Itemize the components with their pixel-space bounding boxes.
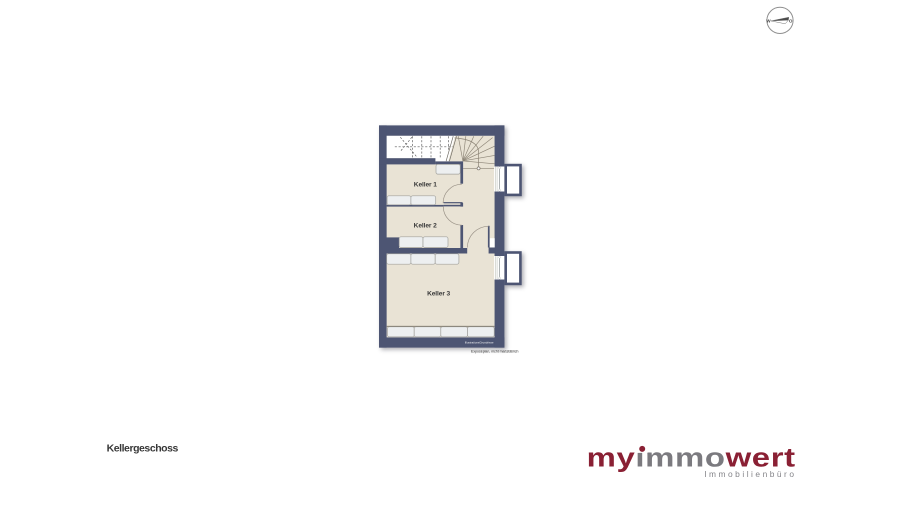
- svg-text:W: W: [766, 18, 771, 23]
- svg-text:Exposéplan, nicht maßstäblich: Exposéplan, nicht maßstäblich: [471, 350, 519, 354]
- svg-text:Keller 1: Keller 1: [414, 182, 437, 189]
- svg-text:IllustrationsGrundrisse: IllustrationsGrundrisse: [465, 341, 494, 345]
- svg-text:Immobilienbüro: Immobilienbüro: [704, 469, 796, 479]
- svg-text:myimmowert: myimmowert: [587, 443, 796, 473]
- svg-text:Keller 2: Keller 2: [414, 223, 437, 230]
- svg-text:Kellergeschoss: Kellergeschoss: [107, 442, 179, 454]
- svg-text:Keller 3: Keller 3: [427, 291, 450, 298]
- svg-text:O: O: [789, 18, 793, 23]
